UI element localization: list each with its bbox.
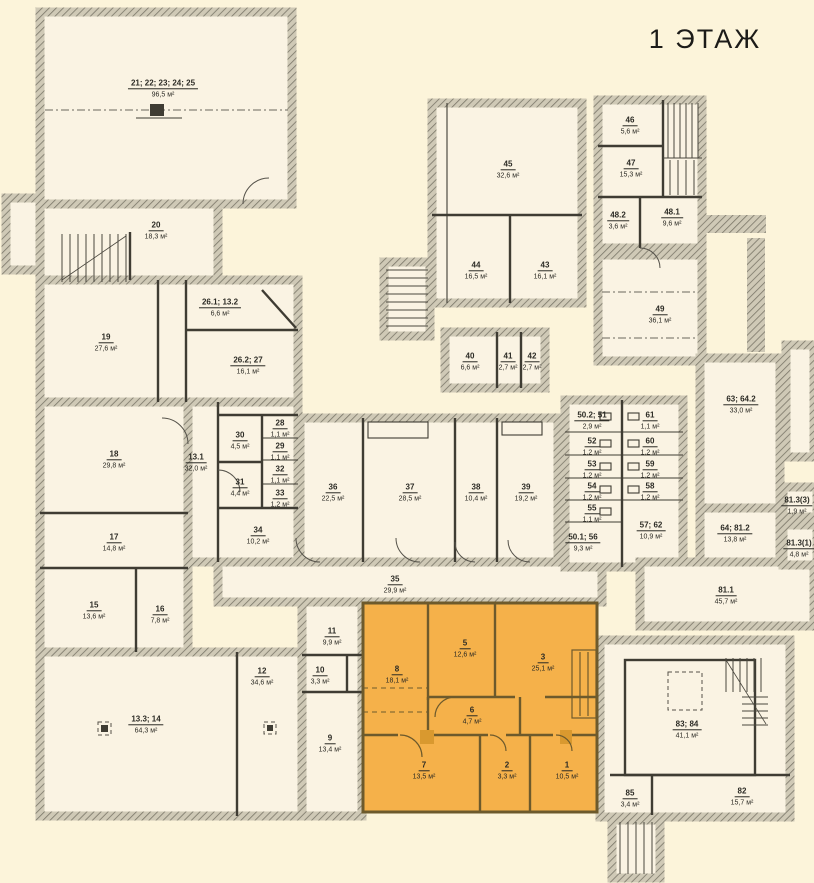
highlighted-unit[interactable]	[363, 603, 597, 812]
floor-plan-canvas: 1 ЭТАЖ 21; 22; 23; 24; 2596,5 м²2018,3 м…	[0, 0, 814, 883]
floor-title: 1 ЭТАЖ	[649, 24, 761, 55]
floor-plan-drawing	[0, 0, 814, 883]
